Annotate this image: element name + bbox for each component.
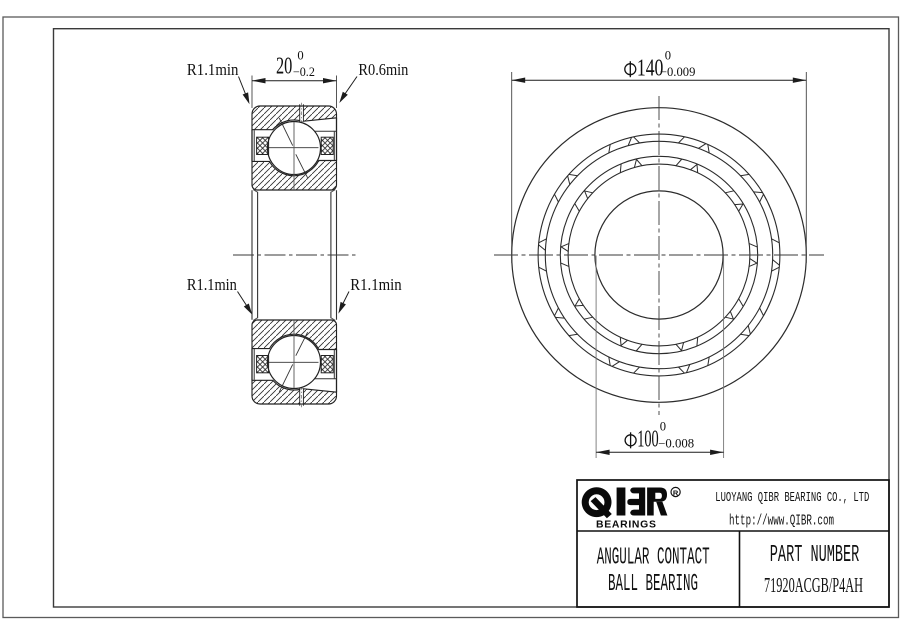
svg-text:R1.1min: R1.1min xyxy=(350,275,402,294)
svg-text:0: 0 xyxy=(665,49,671,63)
svg-text:20: 20 xyxy=(276,54,292,80)
svg-text:PART NUMBER: PART NUMBER xyxy=(770,542,860,569)
svg-text:BALL BEARING: BALL BEARING xyxy=(608,571,698,598)
svg-text:ANGULAR CONTACT: ANGULAR CONTACT xyxy=(597,544,710,571)
svg-text:−0.009: −0.009 xyxy=(660,65,696,79)
svg-text:−0.2: −0.2 xyxy=(293,65,315,79)
svg-text:R1.1min: R1.1min xyxy=(187,275,237,294)
svg-text:71920ACGB/P4AH: 71920ACGB/P4AH xyxy=(764,573,863,597)
svg-text:R0.6min: R0.6min xyxy=(358,60,408,79)
svg-text:BEARINGS: BEARINGS xyxy=(596,520,657,531)
svg-text:100: 100 xyxy=(637,426,659,452)
svg-text:R1.1min: R1.1min xyxy=(187,60,239,79)
svg-text:0: 0 xyxy=(660,420,666,434)
svg-text:−0.008: −0.008 xyxy=(658,437,694,451)
svg-text:LUOYANG QIBR BEARING CO., LTD: LUOYANG QIBR BEARING CO., LTD xyxy=(715,490,869,506)
svg-text:0: 0 xyxy=(297,49,303,63)
svg-text:http://www.QIBR.com: http://www.QIBR.com xyxy=(729,512,834,529)
svg-text:R: R xyxy=(673,488,679,497)
